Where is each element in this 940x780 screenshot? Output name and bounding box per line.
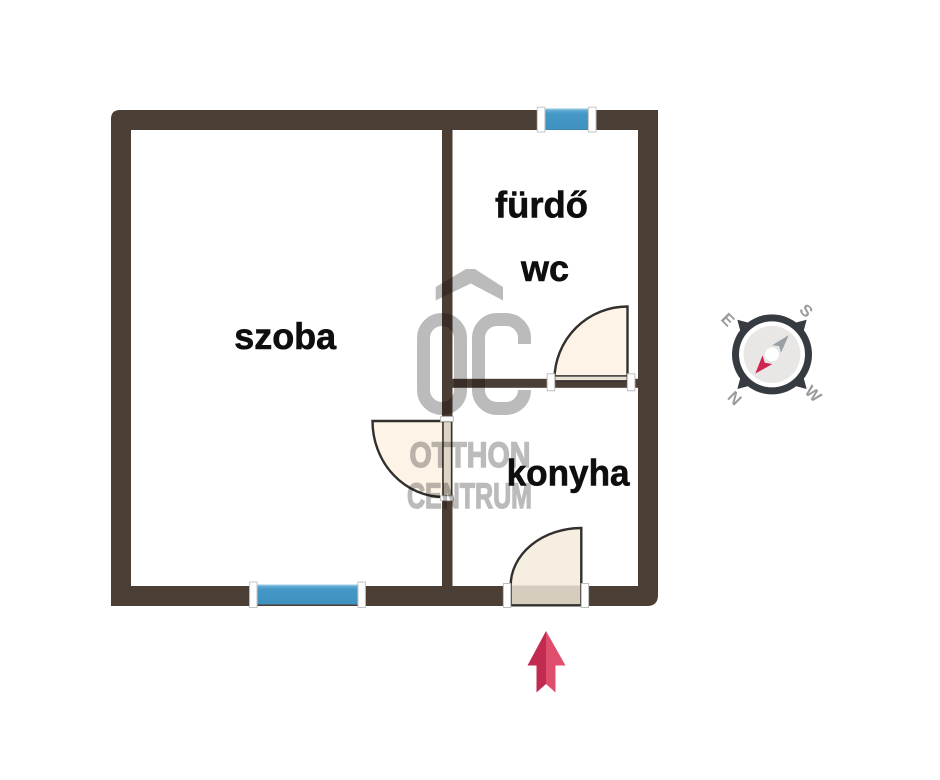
- svg-text:konyha: konyha: [507, 453, 630, 494]
- svg-text:szoba: szoba: [234, 316, 336, 357]
- svg-text:wc: wc: [520, 248, 569, 289]
- svg-text:fürdő: fürdő: [495, 185, 588, 226]
